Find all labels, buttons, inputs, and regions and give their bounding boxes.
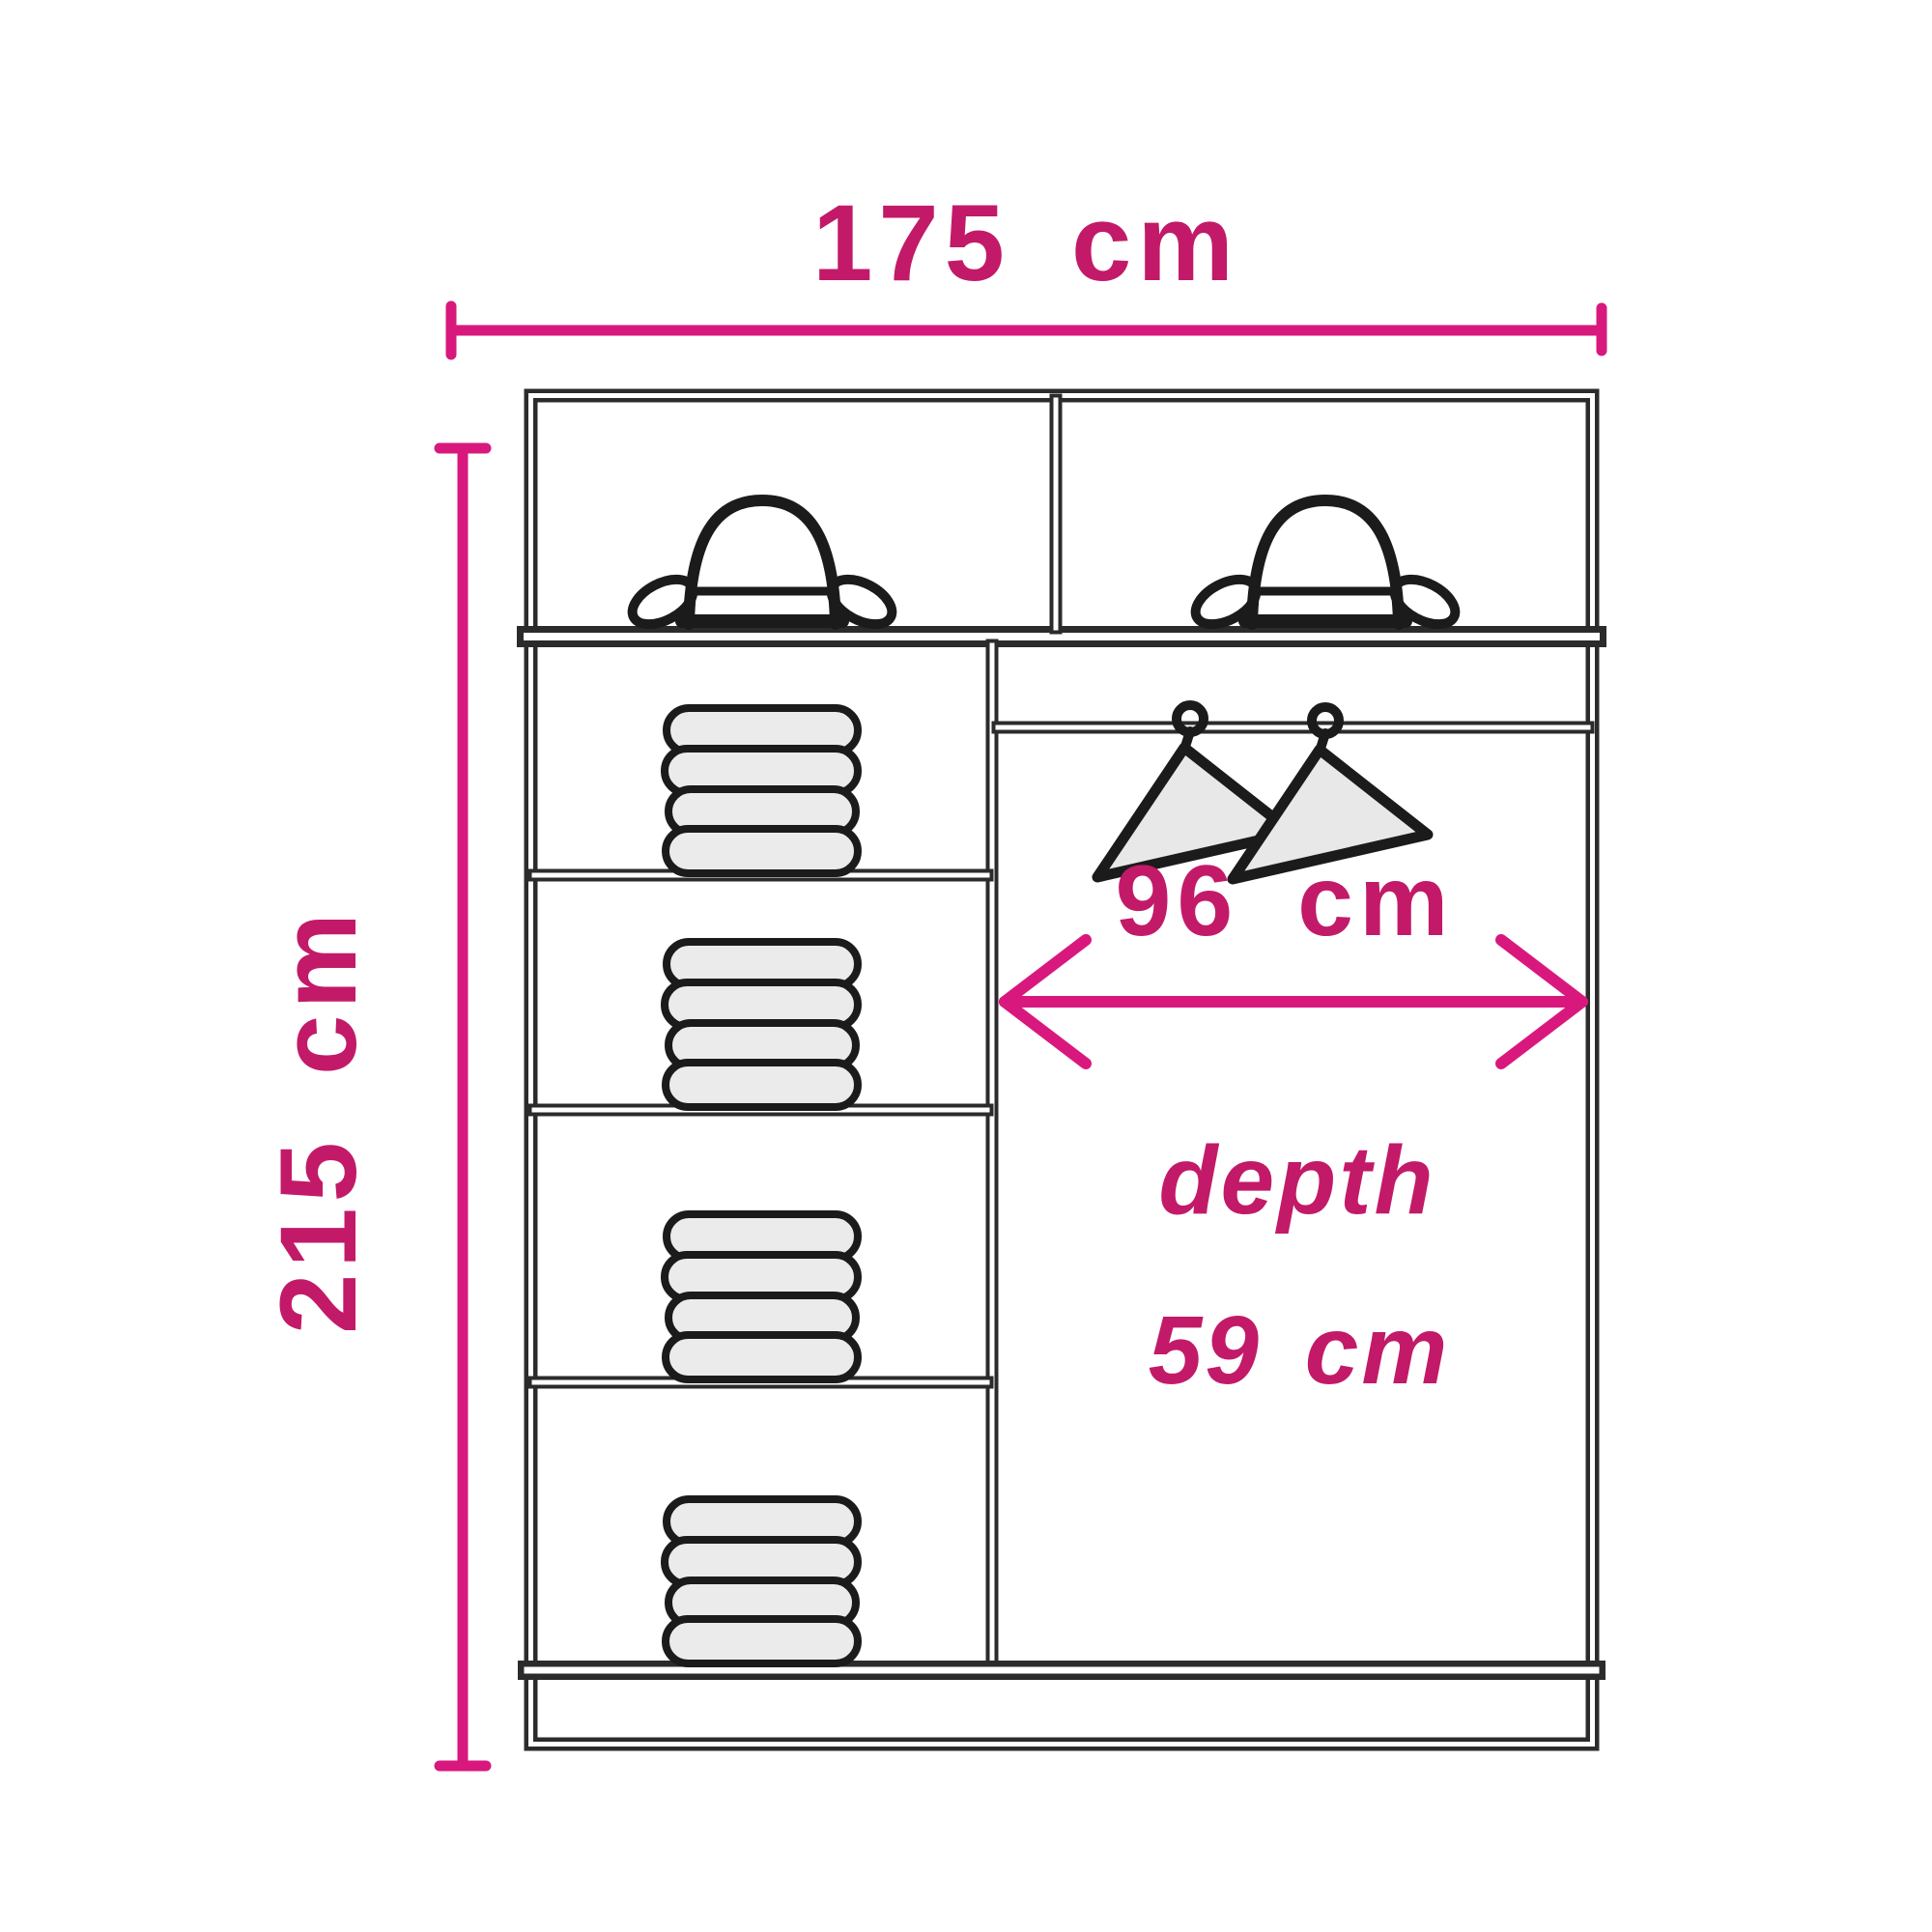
depth-value-label: 59 cm	[1149, 1296, 1451, 1405]
height-dimension-label: 215 cm	[258, 907, 379, 1334]
width-dimension-label: 175 cm	[812, 183, 1239, 303]
bowler-hat-icon-left	[625, 500, 899, 634]
towel-stack-4	[665, 1499, 858, 1663]
towel-stack-3	[665, 1214, 858, 1379]
diagram-canvas: 175 cm 215 cm 96 cm depth 59 cm	[0, 0, 1932, 1932]
wardrobe-dimension-diagram: 175 cm 215 cm 96 cm depth 59 cm	[0, 0, 1932, 1932]
towel-stack-2	[665, 942, 858, 1107]
width-dimension-line	[451, 306, 1602, 355]
hanging-width-arrow	[1005, 940, 1582, 1064]
depth-word-label: depth	[1158, 1126, 1435, 1235]
towel-stack-1	[665, 708, 858, 873]
hanging-width-label: 96 cm	[1116, 845, 1455, 957]
bowler-hat-icon-right	[1188, 500, 1463, 634]
height-dimension-line	[440, 448, 486, 1766]
